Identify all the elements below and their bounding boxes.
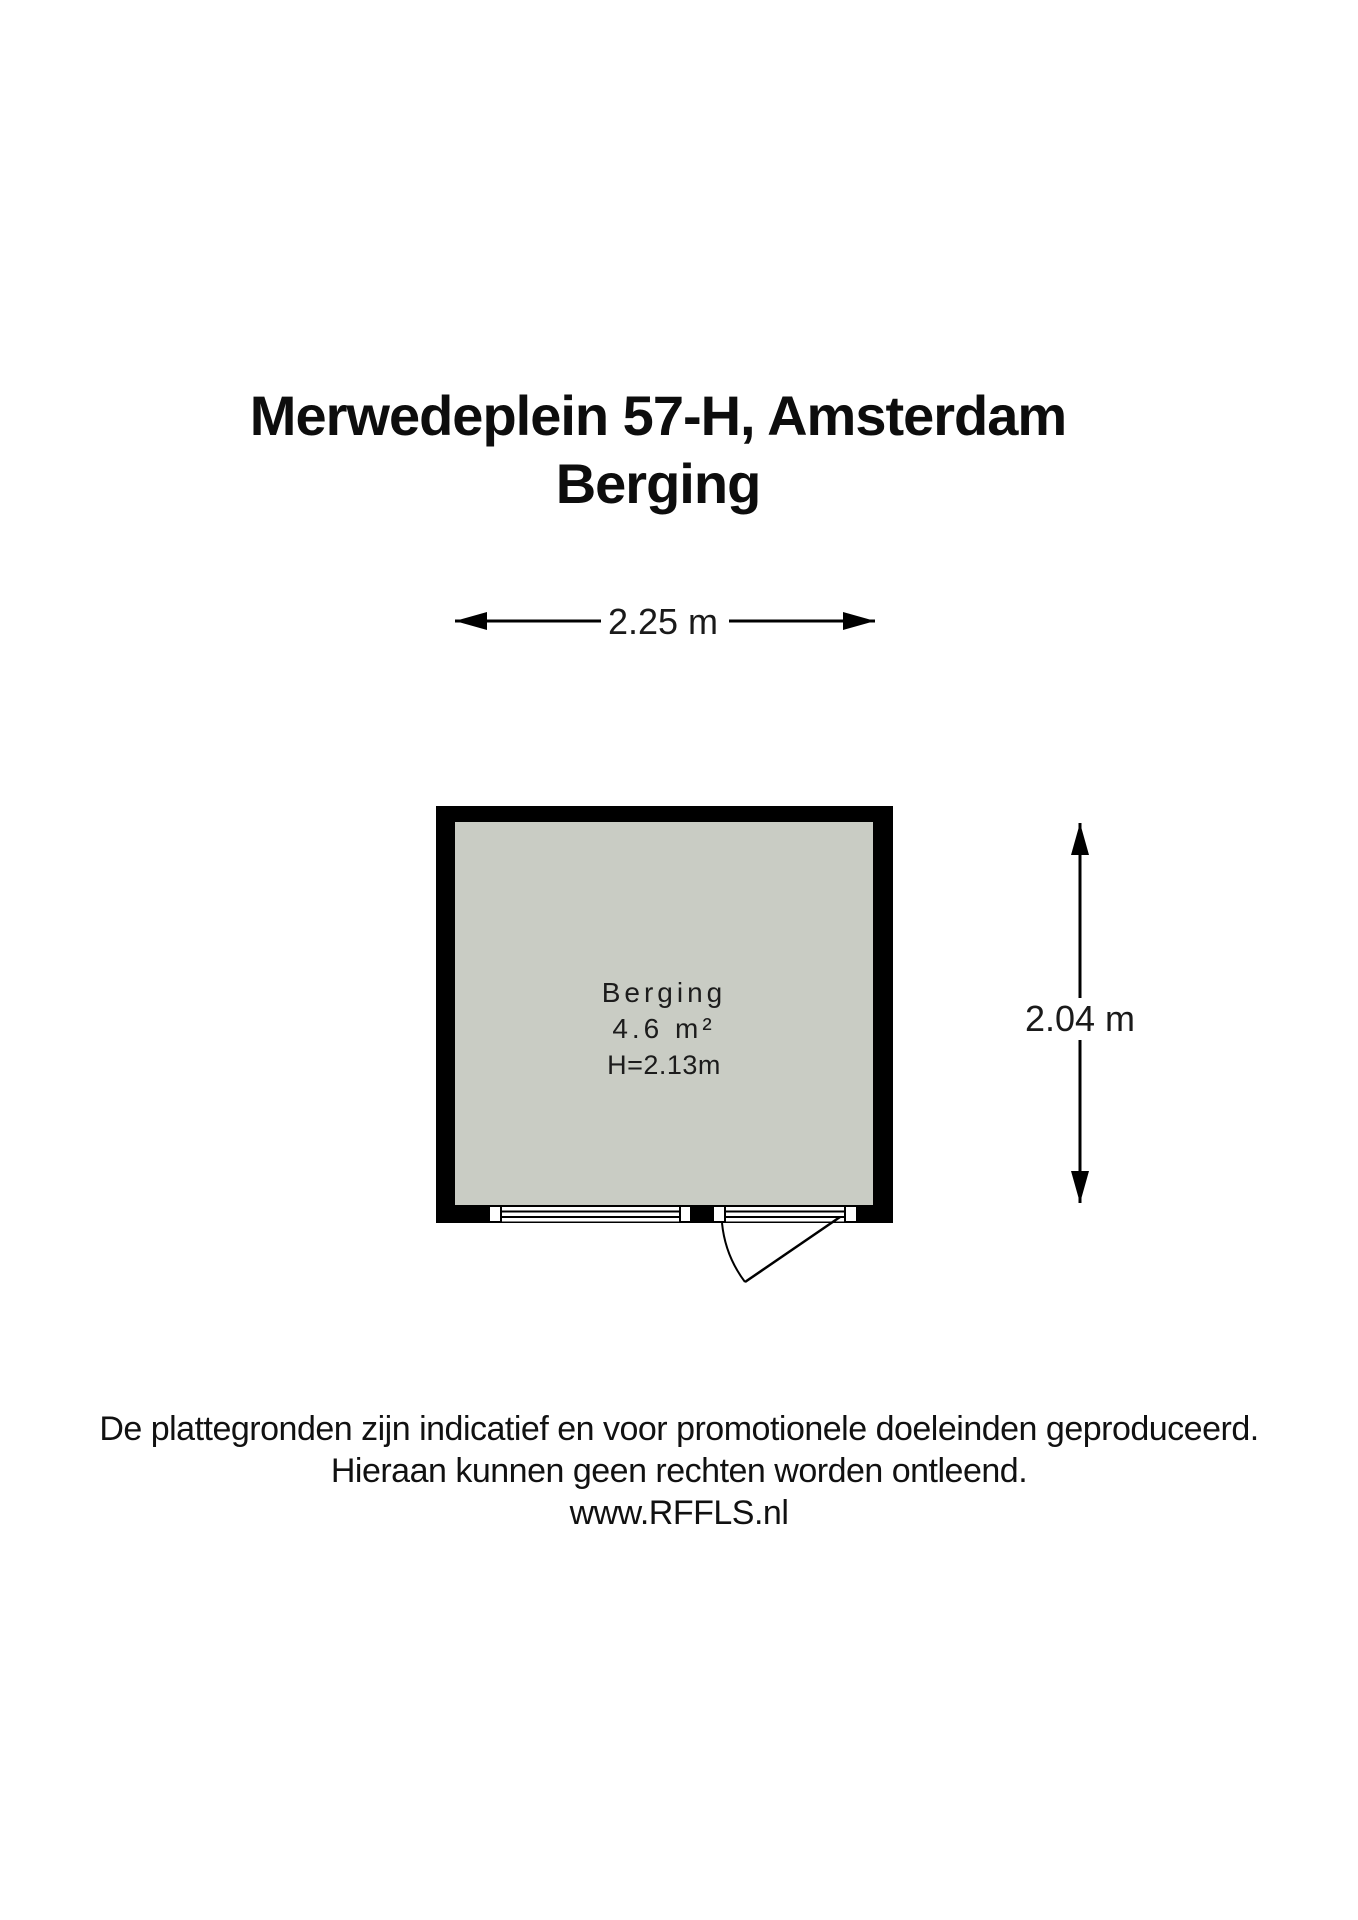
disclaimer-line-1: De plattegronden zijn indicatief en voor… <box>0 1408 1358 1450</box>
door-leaf <box>745 1217 840 1282</box>
door-swing-graphics <box>0 0 1358 1920</box>
door-swing-arc <box>722 1223 745 1282</box>
floorplan-page: Merwedeplein 57-H, Amsterdam Berging 2.2… <box>0 0 1358 1920</box>
height-dimension-label: 2.04 m <box>980 998 1180 1040</box>
disclaimer-website: www.RFFLS.nl <box>0 1492 1358 1534</box>
disclaimer: De plattegronden zijn indicatief en voor… <box>0 1408 1358 1534</box>
disclaimer-line-2: Hieraan kunnen geen rechten worden ontle… <box>0 1450 1358 1492</box>
